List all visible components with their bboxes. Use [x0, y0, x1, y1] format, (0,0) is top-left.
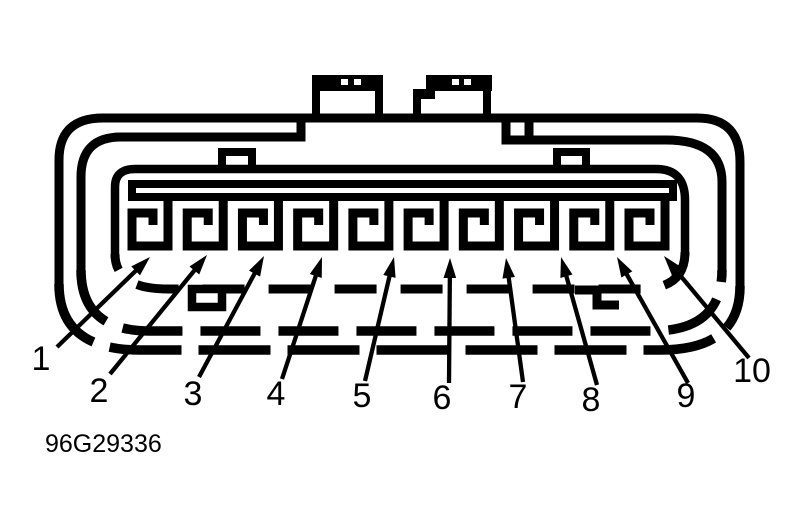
pin-8-arrowhead-icon [560, 257, 572, 278]
latch-tab-left [312, 75, 383, 120]
terminal-bar [132, 184, 673, 197]
pin-number-label-10: 10 [733, 352, 771, 390]
pin-3-arrowhead-icon [249, 256, 264, 277]
pin-7-arrowhead-icon [502, 258, 514, 279]
pin-number-label-6: 6 [433, 379, 452, 417]
pin-9-arrowhead-icon [617, 257, 632, 278]
latch-tab-right [413, 75, 492, 120]
retainer-window [192, 289, 222, 307]
pin-5-arrowhead-icon [383, 257, 395, 278]
pin-terminal-10 [629, 199, 665, 246]
pin-terminals [132, 199, 665, 246]
pin-number-label-5: 5 [353, 377, 372, 415]
pin-terminal-3 [242, 199, 278, 246]
pin-terminal-7 [463, 199, 499, 246]
pin-1-leader-line [57, 268, 139, 347]
pin-number-label-9: 9 [677, 377, 696, 415]
connector-diagram-page: 12345678910 96G29336 [0, 0, 803, 526]
pin-number-label-4: 4 [267, 375, 286, 413]
pin-terminal-4 [298, 199, 334, 246]
latch-tab-right-notch [464, 79, 471, 85]
pin-number-label-1: 1 [32, 340, 51, 378]
latch-tab-left-notch [341, 79, 348, 85]
pin-4-arrowhead-icon [310, 257, 322, 278]
hidden-edge-middle [81, 270, 722, 331]
pin-terminal-8 [519, 199, 555, 246]
connector-diagram: 12345678910 96G29336 [0, 0, 803, 526]
pin-terminal-6 [408, 199, 444, 246]
latch-tab-right-notch [452, 79, 459, 85]
figure-id-caption: 96G29336 [45, 430, 162, 458]
pin-number-label-8: 8 [582, 381, 601, 419]
pin-terminal-1 [132, 199, 168, 246]
pin-6-leader-line [449, 274, 450, 383]
pin-6-arrowhead-icon [444, 258, 457, 278]
pin-number-label-7: 7 [509, 378, 528, 416]
latch-tab-left-notch [354, 79, 361, 85]
pin-terminal-2 [187, 199, 223, 246]
pin-terminal-9 [574, 199, 610, 246]
pin-leader-arrows [57, 255, 749, 385]
pin-terminal-5 [353, 199, 389, 246]
pin-number-label-3: 3 [184, 375, 203, 413]
pin-number-label-2: 2 [90, 372, 109, 410]
